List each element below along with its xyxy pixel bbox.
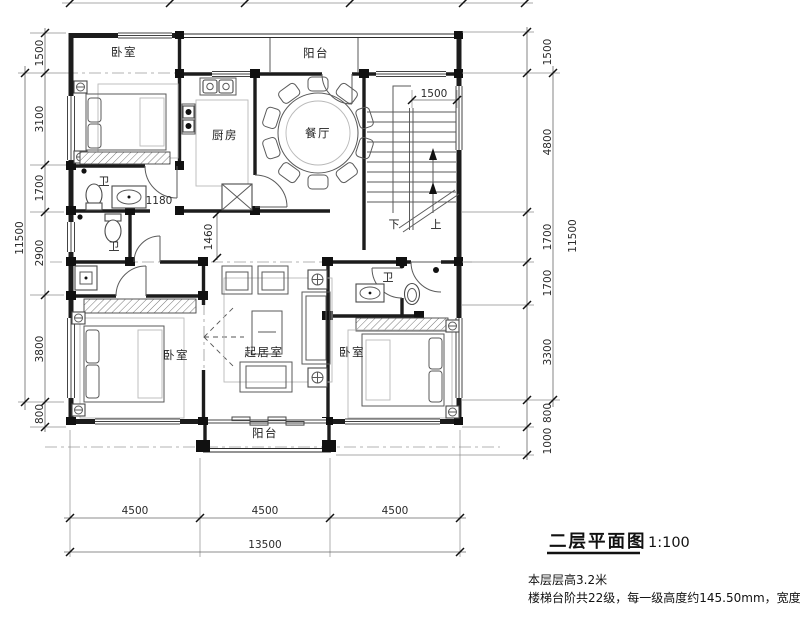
dim-right-4: 3300 xyxy=(542,339,554,366)
dim-bottom-2: 4500 xyxy=(382,505,409,517)
staircase xyxy=(367,86,461,232)
door-kitchen xyxy=(255,175,287,207)
label-bedroom-left: 卧室 xyxy=(163,348,189,362)
label-bedroom-right: 卧室 xyxy=(339,345,365,359)
dim-right-3: 1700 xyxy=(542,270,554,297)
dim-left-5: 800 xyxy=(34,404,46,424)
label-balcony-top: 阳台 xyxy=(303,46,329,60)
label-bath-right: 卫 xyxy=(383,271,394,284)
drawing-scale: 1:100 xyxy=(648,535,690,551)
furniture-living xyxy=(222,266,332,392)
sliding-door-balcony-south xyxy=(208,417,326,425)
window-bath-west xyxy=(66,222,75,252)
fixtures-bath-ensuite xyxy=(81,168,146,210)
drawing-note-2: 楼梯台阶共22级，每一级高度约145.50mm，宽度260mm xyxy=(528,590,800,605)
dim-left-0: 1500 xyxy=(34,40,46,67)
dim-bottom-0: 4500 xyxy=(122,505,149,517)
dim-left-2: 1700 xyxy=(34,175,46,202)
label-bedroom-top: 卧室 xyxy=(111,45,137,59)
drawing-title: 二层平面图 xyxy=(549,532,647,552)
fixtures-bath-shared xyxy=(77,214,121,242)
furniture-bedroom-top xyxy=(74,81,178,164)
window-bedroom-right-south xyxy=(345,418,440,425)
exterior-walls xyxy=(69,33,462,452)
furniture-kitchen xyxy=(182,78,252,210)
dim-bottom-total: 13500 xyxy=(248,539,281,551)
dim-bottom-1: 4500 xyxy=(252,505,279,517)
door-bath-shared xyxy=(134,236,160,262)
kitchen-flue xyxy=(222,184,252,210)
floor-plan-page: 卧室 阳台 厨房 餐厅 卫 卫 卫 卧室 起居室 卧室 阳台 下 上 1500 … xyxy=(0,0,800,618)
window-kitchen-north xyxy=(212,70,250,78)
drawing-note-1: 本层层高3.2米 xyxy=(528,572,607,587)
window-bedroom-left-south xyxy=(95,418,180,425)
dim-left-total: 11500 xyxy=(14,221,26,254)
dim-right-5: 800 xyxy=(542,403,554,423)
window-bedroom-left-west xyxy=(66,318,75,398)
dim-right-0: 1500 xyxy=(542,39,554,66)
door-bedroom-left xyxy=(116,266,146,296)
furniture-bedroom-right xyxy=(348,318,459,418)
fixtures-hall-basin xyxy=(75,266,97,290)
dimension-chain-right xyxy=(336,27,560,460)
dim-stair-width: 1500 xyxy=(421,88,448,100)
dim-left-1: 3100 xyxy=(34,106,46,133)
window-bedroom-top-west xyxy=(66,96,75,160)
dim-right-2: 1700 xyxy=(542,224,554,251)
floor-plan-canvas: 卧室 阳台 厨房 餐厅 卫 卫 卫 卧室 起居室 卧室 阳台 下 上 1500 … xyxy=(0,0,800,618)
label-living: 起居室 xyxy=(245,345,284,359)
label-bath-shared: 卫 xyxy=(109,240,120,253)
fixtures-bath-right xyxy=(356,267,439,305)
dim-right-total: 11500 xyxy=(567,219,579,252)
dim-door-width: 1180 xyxy=(146,195,173,207)
label-dining: 餐厅 xyxy=(305,126,331,140)
label-kitchen: 厨房 xyxy=(212,128,238,142)
dim-left-3: 2900 xyxy=(34,240,46,267)
dim-right-1: 4800 xyxy=(542,129,554,156)
label-balcony-bottom: 阳台 xyxy=(252,426,278,440)
title-block: 二层平面图 1:100 本层层高3.2米 楼梯台阶共22级，每一级高度约145.… xyxy=(528,532,800,605)
window-stair-east xyxy=(455,86,464,150)
label-bath-ensuite: 卫 xyxy=(99,175,110,188)
dim-right-6: 1000 xyxy=(542,428,554,455)
window-bedroom-top-north xyxy=(118,31,172,40)
label-stair-down: 下 xyxy=(389,218,400,231)
window-stair-north xyxy=(376,70,446,78)
dim-hall-width: 1460 xyxy=(203,224,215,251)
label-stair-up: 上 xyxy=(431,218,442,231)
dim-left-4: 3800 xyxy=(34,336,46,363)
door-bedroom-top xyxy=(145,166,177,198)
